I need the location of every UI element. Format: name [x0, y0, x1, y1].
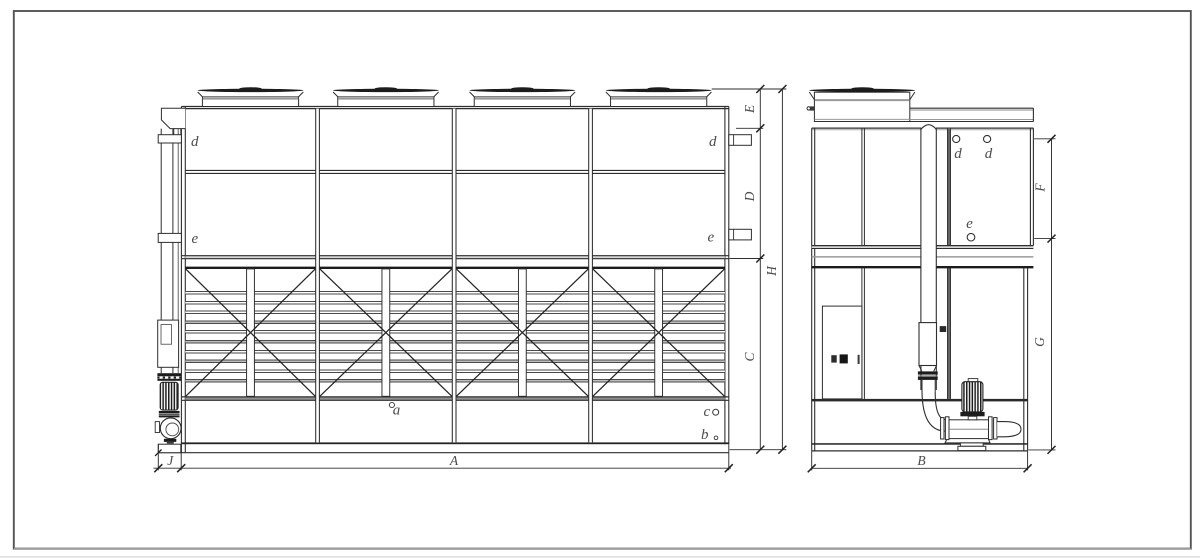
svg-text:J: J — [167, 453, 174, 468]
svg-text:e: e — [191, 231, 198, 247]
svg-text:C: C — [742, 352, 757, 362]
svg-text:D: D — [742, 191, 757, 202]
svg-text:H: H — [764, 265, 779, 277]
svg-text:a: a — [393, 403, 401, 419]
svg-text:e: e — [707, 230, 714, 246]
svg-text:d: d — [191, 134, 199, 150]
svg-text:E: E — [742, 104, 757, 114]
svg-text:d: d — [985, 146, 993, 162]
svg-text:d: d — [709, 134, 717, 150]
svg-text:G: G — [1032, 337, 1047, 347]
svg-text:d: d — [954, 146, 962, 162]
svg-text:b: b — [701, 427, 709, 443]
svg-text:F: F — [1033, 183, 1048, 193]
svg-text:B: B — [917, 453, 925, 468]
svg-text:e: e — [966, 216, 973, 232]
svg-text:c: c — [703, 404, 710, 420]
svg-text:A: A — [449, 453, 459, 468]
